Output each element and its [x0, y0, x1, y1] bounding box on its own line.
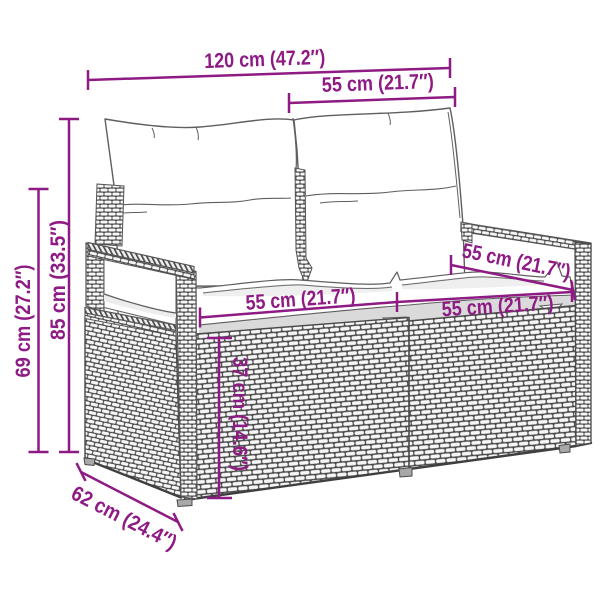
svg-text:85 cm (33.5″): 85 cm (33.5″): [47, 220, 70, 340]
svg-text:55 cm (21.7″): 55 cm (21.7″): [321, 70, 434, 97]
svg-text:37 cm (14.6″): 37 cm (14.6″): [228, 357, 251, 471]
svg-text:120 cm (47.2″): 120 cm (47.2″): [204, 46, 326, 73]
svg-text:69 cm (27.2″): 69 cm (27.2″): [12, 265, 35, 378]
